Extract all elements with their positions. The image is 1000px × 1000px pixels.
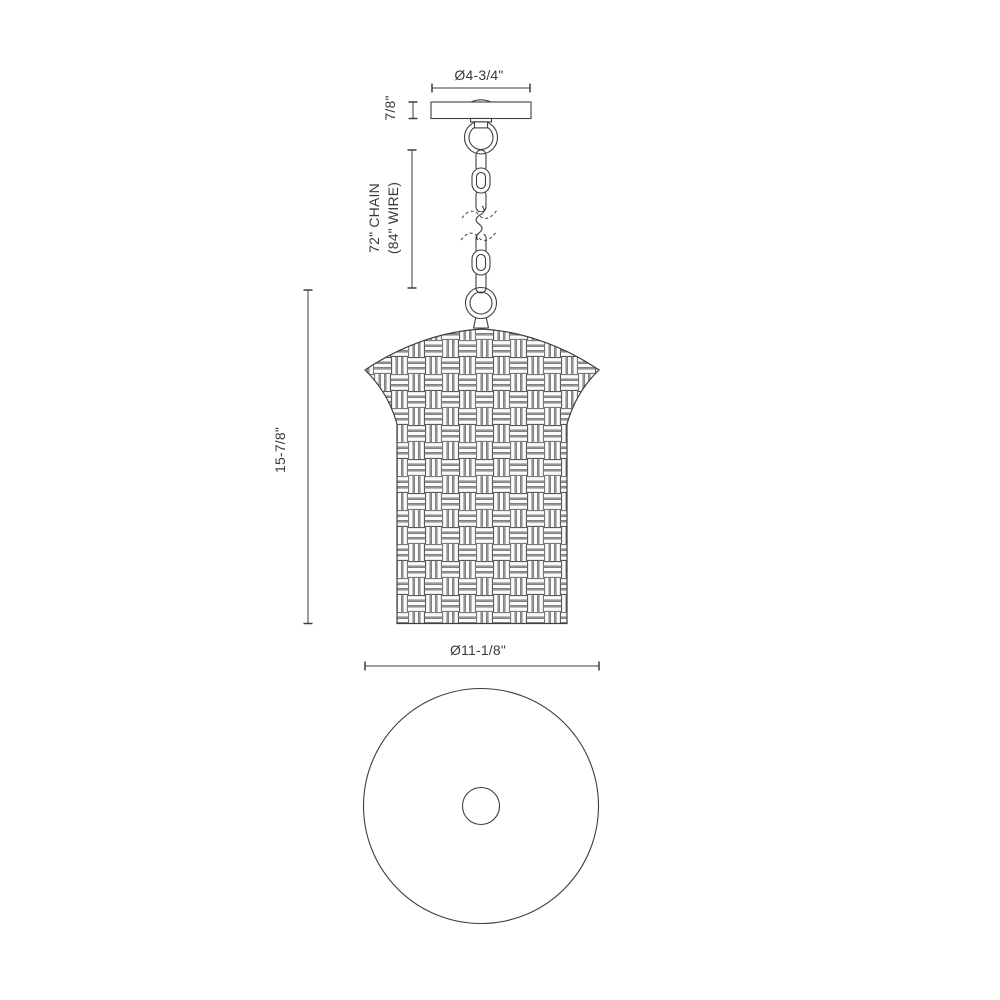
canopy-diameter-label: Ø4-3/4" <box>454 67 503 83</box>
drawing-svg <box>0 0 1000 1000</box>
canopy-diameter-dimension-line <box>432 84 530 93</box>
chain-length-label: 72" CHAIN (84" WIRE) <box>365 182 403 254</box>
bottom-view-socket-circle <box>463 788 500 825</box>
chain-length-line: 72" CHAIN <box>365 182 384 254</box>
canopy-height-dimension-line <box>409 102 418 119</box>
pendant-dimension-drawing: Ø4-3/4" 7/8" 72" CHAIN (84" WIRE) 15-7/8… <box>0 0 1000 1000</box>
canopy-plate <box>431 102 531 119</box>
shade-hang-ring <box>466 288 497 319</box>
shade-diameter-label: Ø11-1/8" <box>450 642 506 658</box>
front-view <box>365 100 599 624</box>
shade-diameter-dimension-line <box>365 662 599 671</box>
chain-length-dimension-line <box>408 150 417 288</box>
bottom-view <box>364 689 599 924</box>
shade-body-weave <box>365 329 599 624</box>
wire-length-line: (84" WIRE) <box>384 182 403 254</box>
chain-link-front-2 <box>472 250 490 275</box>
canopy-stem <box>475 122 488 128</box>
chain <box>461 150 497 293</box>
bottom-view-shade-circle <box>364 689 599 924</box>
canopy-height-label: 7/8" <box>382 95 398 120</box>
fixture-height-dimension-line <box>304 290 313 624</box>
chain-link-front-1 <box>472 168 490 193</box>
fixture-height-label: 15-7/8" <box>272 427 288 473</box>
